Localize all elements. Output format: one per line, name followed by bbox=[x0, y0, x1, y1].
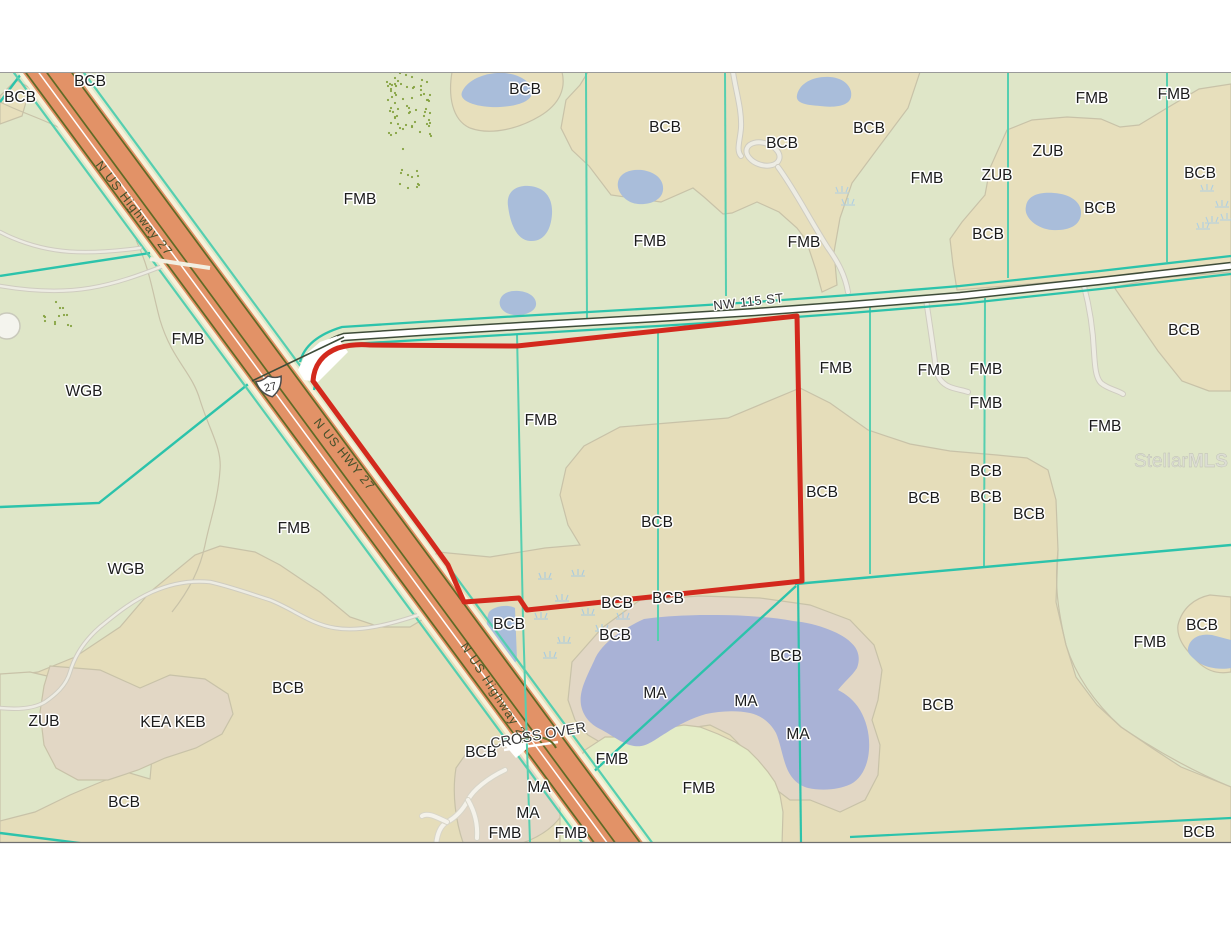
svg-text:BCB: BCB bbox=[1186, 617, 1218, 634]
svg-text:BCB: BCB bbox=[74, 73, 106, 90]
svg-text:ZUB: ZUB bbox=[1033, 143, 1064, 160]
svg-text:BCB: BCB bbox=[652, 590, 684, 607]
svg-text:BCB: BCB bbox=[908, 490, 940, 507]
svg-text:FMB: FMB bbox=[1076, 90, 1109, 107]
svg-text:FMB: FMB bbox=[1089, 418, 1122, 435]
svg-text:BCB: BCB bbox=[770, 648, 802, 665]
svg-text:BCB: BCB bbox=[641, 514, 673, 531]
svg-text:FMB: FMB bbox=[683, 780, 716, 797]
svg-text:BCB: BCB bbox=[509, 81, 541, 98]
svg-text:BCB: BCB bbox=[1084, 200, 1116, 217]
svg-text:FMB: FMB bbox=[172, 331, 205, 348]
svg-text:BCB: BCB bbox=[601, 595, 633, 612]
svg-text:FMB: FMB bbox=[911, 170, 944, 187]
svg-text:BCB: BCB bbox=[493, 616, 525, 633]
svg-text:MA: MA bbox=[527, 779, 551, 796]
svg-text:FMB: FMB bbox=[970, 395, 1003, 412]
svg-text:FMB: FMB bbox=[970, 361, 1003, 378]
svg-text:BCB: BCB bbox=[1013, 506, 1045, 523]
svg-text:WGB: WGB bbox=[107, 561, 144, 578]
svg-text:MA: MA bbox=[734, 693, 758, 710]
svg-text:BCB: BCB bbox=[766, 135, 798, 152]
svg-text:FMB: FMB bbox=[918, 362, 951, 379]
svg-text:MA: MA bbox=[786, 726, 810, 743]
svg-text:FMB: FMB bbox=[278, 520, 311, 537]
svg-text:KEA KEB: KEA KEB bbox=[140, 714, 205, 731]
svg-text:BCB: BCB bbox=[1184, 165, 1216, 182]
svg-text:StellarMLS: StellarMLS bbox=[1134, 451, 1228, 472]
svg-text:FMB: FMB bbox=[525, 412, 558, 429]
svg-text:WGB: WGB bbox=[65, 383, 102, 400]
svg-text:BCB: BCB bbox=[649, 119, 681, 136]
svg-text:BCB: BCB bbox=[272, 680, 304, 697]
svg-text:BCB: BCB bbox=[970, 463, 1002, 480]
svg-text:FMB: FMB bbox=[344, 191, 377, 208]
svg-text:FMB: FMB bbox=[1158, 86, 1191, 103]
svg-text:BCB: BCB bbox=[806, 484, 838, 501]
svg-text:FMB: FMB bbox=[634, 233, 667, 250]
svg-text:BCB: BCB bbox=[108, 794, 140, 811]
svg-text:MA: MA bbox=[516, 805, 540, 822]
svg-text:ZUB: ZUB bbox=[29, 713, 60, 730]
svg-text:BCB: BCB bbox=[970, 489, 1002, 506]
svg-text:BCB: BCB bbox=[972, 226, 1004, 243]
svg-text:BCB: BCB bbox=[1168, 322, 1200, 339]
svg-text:ZUB: ZUB bbox=[982, 167, 1013, 184]
svg-text:FMB: FMB bbox=[555, 825, 588, 842]
svg-text:BCB: BCB bbox=[4, 89, 36, 106]
svg-text:FMB: FMB bbox=[820, 360, 853, 377]
svg-text:MA: MA bbox=[643, 685, 667, 702]
svg-text:BCB: BCB bbox=[1183, 824, 1215, 841]
svg-text:BCB: BCB bbox=[599, 627, 631, 644]
svg-text:FMB: FMB bbox=[788, 234, 821, 251]
svg-text:BCB: BCB bbox=[922, 697, 954, 714]
svg-text:FMB: FMB bbox=[596, 751, 629, 768]
svg-text:FMB: FMB bbox=[489, 825, 522, 842]
svg-text:27: 27 bbox=[263, 380, 278, 394]
svg-text:FMB: FMB bbox=[1134, 634, 1167, 651]
svg-text:BCB: BCB bbox=[853, 120, 885, 137]
